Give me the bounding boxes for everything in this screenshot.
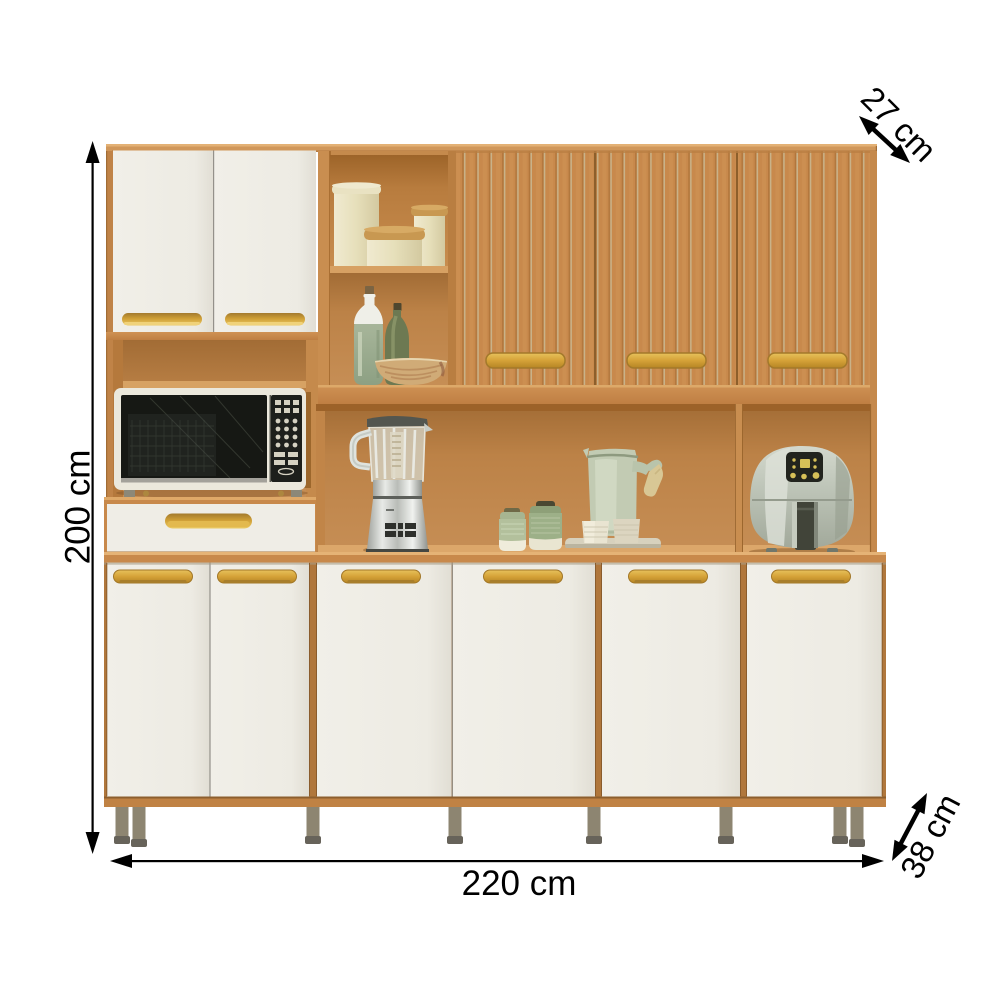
svg-text:200 cm: 200 cm (58, 450, 97, 565)
svg-text:220 cm: 220 cm (462, 864, 577, 903)
